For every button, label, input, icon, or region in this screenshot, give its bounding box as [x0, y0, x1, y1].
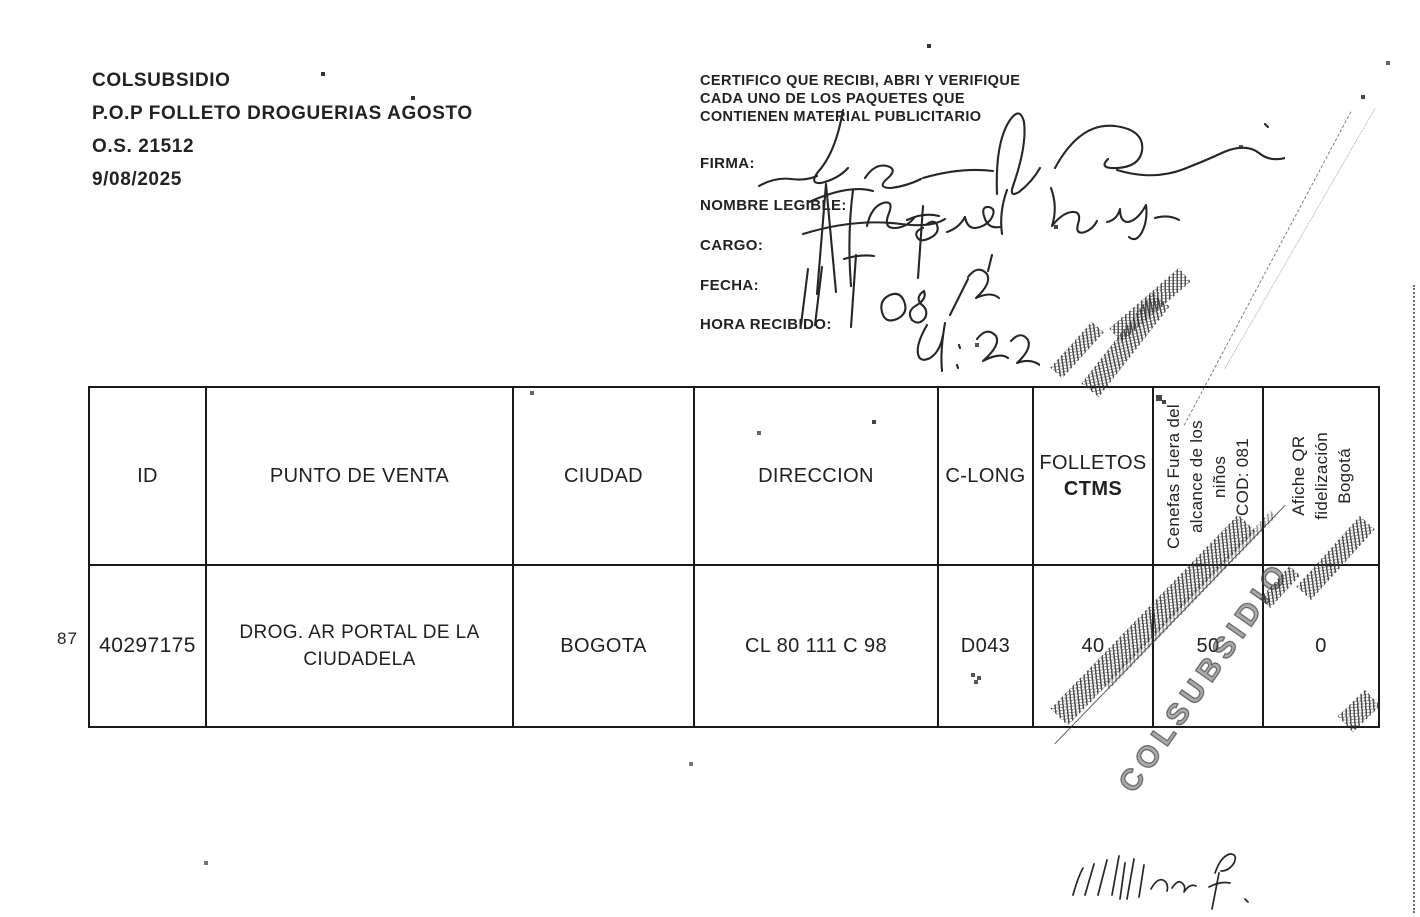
cargo-label: CARGO:	[700, 237, 763, 254]
order-date: 9/08/2025	[92, 163, 473, 196]
col-header-ciudad: CIUDAD	[514, 388, 695, 566]
folletos-header-line1: FOLLETOS	[1039, 450, 1146, 476]
cenefas-header-line2: alcance de los	[1185, 404, 1208, 549]
col-header-punto-de-venta: PUNTO DE VENTA	[207, 388, 514, 566]
col-header-folletos-ctms: FOLLETOS CTMS	[1034, 388, 1154, 566]
afiche-header-line1: Afiche QR	[1287, 432, 1310, 520]
row-cell-id: 40297175	[90, 566, 207, 726]
cenefas-header-line1: Cenefas Fuera del	[1162, 404, 1185, 549]
scan-noise	[0, 0, 2, 2]
company-name: COLSUBSIDIO	[92, 64, 473, 97]
row-cell-direccion: CL 80 111 C 98	[695, 566, 939, 726]
col-header-id: ID	[90, 388, 207, 566]
campaign-title: P.O.P FOLLETO DROGUERIAS AGOSTO	[92, 97, 473, 130]
fecha-label: FECHA:	[700, 277, 759, 294]
order-number: O.S. 21512	[92, 130, 473, 163]
col-header-c-long: C-LONG	[939, 388, 1034, 566]
row-cell-punto-de-venta: DROG. AR PORTAL DE LA CIUDADELA	[207, 566, 514, 726]
col-header-direccion: DIRECCION	[695, 388, 939, 566]
row-number: 87	[57, 629, 78, 649]
scan-edge-artifact	[1413, 285, 1415, 913]
afiche-header-line3: Bogotá	[1333, 432, 1356, 520]
afiche-header-line2: fidelización	[1310, 432, 1333, 520]
order-info-block: COLSUBSIDIO P.O.P FOLLETO DROGUERIAS AGO…	[92, 64, 473, 196]
folletos-header-line2: CTMS	[1039, 476, 1146, 502]
footer-signature-handwriting	[1063, 845, 1263, 910]
row-cell-c-long: D043	[939, 566, 1034, 726]
scanned-delivery-receipt: COLSUBSIDIO P.O.P FOLLETO DROGUERIAS AGO…	[0, 0, 1420, 917]
row-cell-ciudad: BOGOTA	[514, 566, 695, 726]
hora-recibido-handwriting	[905, 315, 1040, 390]
certification-line-1: CERTIFICO QUE RECIBI, ABRI Y VERIFIQUE	[700, 72, 1020, 90]
